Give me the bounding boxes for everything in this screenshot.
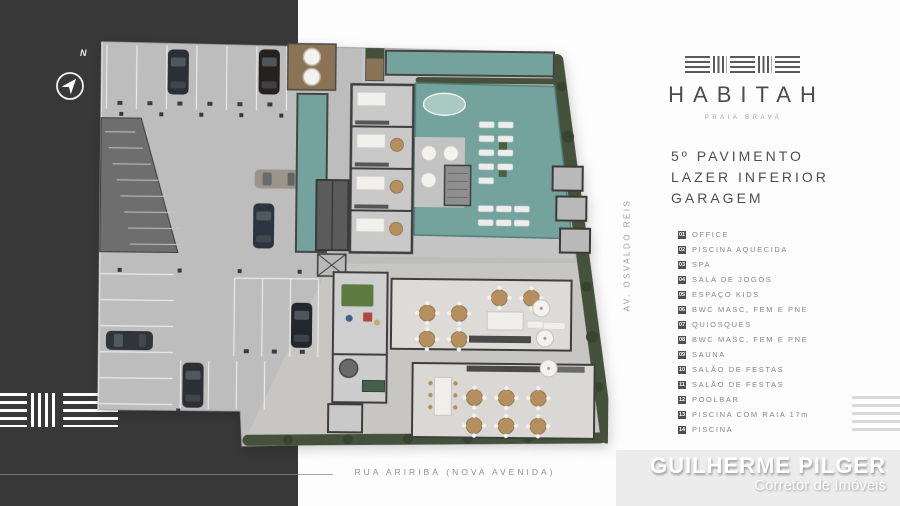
- elevator-core: [316, 180, 349, 276]
- legend-number-badge: 09: [678, 351, 686, 359]
- realtor-role: Corretor de Imóveis: [616, 477, 886, 494]
- plan-title-line1: 5º PAVIMENTO: [671, 146, 829, 167]
- main-pool: [414, 83, 574, 239]
- legend-list: 01OFFICE 02PISCINA AQUECIDA 03SPA 04SALA…: [678, 227, 809, 437]
- lines-motif-left: [0, 393, 27, 427]
- plan-title-line2: LAZER INFERIOR: [671, 167, 829, 188]
- poolbar: [444, 165, 470, 205]
- brand-logo-icon: [622, 56, 862, 73]
- legend-item: 07QUIOSQUES: [678, 317, 809, 332]
- legend-number-badge: 04: [678, 276, 686, 284]
- legend-number-badge: 06: [678, 306, 686, 314]
- bwc-block: [328, 404, 362, 432]
- legend-number-badge: 02: [678, 246, 686, 254]
- plan-title-line3: GARAGEM: [671, 188, 829, 209]
- legend-number-badge: 05: [678, 291, 686, 299]
- street-baseline: [0, 474, 333, 475]
- realtor-name: GUILHERME PILGER: [616, 454, 886, 477]
- legend-number-badge: 12: [678, 396, 686, 404]
- legend-number-badge: 10: [678, 366, 686, 374]
- brand-tagline: PRAIA BRAVA: [622, 115, 862, 121]
- legend-item: 11SALÃO DE FESTAS: [678, 377, 809, 392]
- legend-number-badge: 13: [678, 411, 686, 419]
- street-label-rua: RUA ARIRIBÁ (NOVA AVENIDA): [330, 467, 580, 477]
- legend-number-badge: 11: [678, 381, 686, 389]
- legend-item: 10SALÃO DE FESTAS: [678, 362, 809, 377]
- legend-item: 03SPA: [678, 257, 809, 272]
- legend-item: 02PISCINA AQUECIDA: [678, 242, 809, 257]
- legend-item: 12POOLBAR: [678, 392, 809, 407]
- legend-number-badge: 14: [678, 426, 686, 434]
- legend-item: 14PISCINA: [678, 422, 809, 437]
- planter: [366, 48, 384, 80]
- party-hall-lower: [412, 363, 595, 439]
- flyer-canvas: N: [0, 0, 900, 506]
- legend-item: 04SALA DE JOGOS: [678, 272, 809, 287]
- kiosks-block: [350, 84, 414, 253]
- legend-item: 01OFFICE: [678, 227, 809, 242]
- legend-item: 05ESPAÇO KIDS: [678, 287, 809, 302]
- brand-name: HABITAH: [622, 82, 862, 108]
- kids-room: [333, 272, 388, 355]
- legend-number-badge: 08: [678, 336, 686, 344]
- floor-plan: [28, 21, 612, 457]
- legend-item: 08BWC MASC, FEM E PNE: [678, 332, 809, 347]
- legend-number-badge: 03: [678, 261, 686, 269]
- plan-title: 5º PAVIMENTO LAZER INFERIOR GARAGEM: [671, 146, 829, 209]
- brand-block: HABITAH PRAIA BRAVA: [622, 56, 862, 121]
- street-label-avenue: AV. OSVALDO REIS: [623, 199, 632, 312]
- legend-item: 06BWC MASC, FEM E PNE: [678, 302, 809, 317]
- realtor-footer: GUILHERME PILGER Corretor de Imóveis: [616, 450, 900, 506]
- legend-number-badge: 01: [678, 231, 686, 239]
- legend-item: 13PISCINA COM RAIA 17m: [678, 407, 809, 422]
- legend-number-badge: 07: [678, 321, 686, 329]
- lap-pool-17m: [386, 51, 554, 77]
- games-room: [332, 354, 386, 403]
- legend-item: 09SAUNA: [678, 347, 809, 362]
- spa-deck: [288, 44, 336, 91]
- lines-motif-right: [852, 396, 900, 432]
